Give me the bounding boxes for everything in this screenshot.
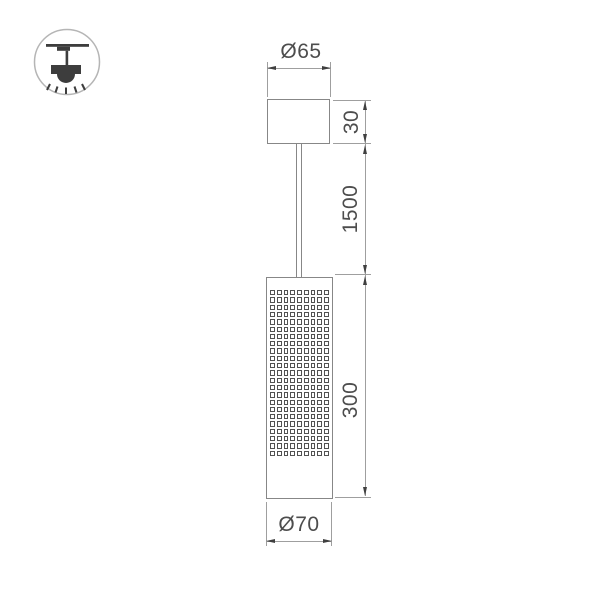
arrowhead-up-icon — [363, 276, 367, 285]
arrowhead-up-icon — [363, 145, 367, 154]
icon-ceiling-line — [46, 44, 89, 47]
canopy — [267, 99, 330, 144]
arrowhead-left-icon — [267, 66, 276, 70]
arrowhead-up-icon — [363, 101, 367, 110]
extension-line — [335, 497, 371, 498]
dim-canopy-diameter-label: Ø65 — [251, 41, 351, 63]
dim-body-diameter-label: Ø70 — [249, 514, 349, 536]
dim-body-height-label: 300 — [340, 382, 362, 419]
dim-canopy-height-label: 30 — [341, 110, 363, 134]
suspension-cable — [296, 144, 302, 277]
arrowhead-down-icon — [363, 265, 367, 274]
arrowhead-right-icon — [323, 539, 332, 543]
technical-drawing-canvas: Ø65 30 1500 300 Ø70 — [0, 0, 600, 600]
arrowhead-right-icon — [322, 66, 331, 70]
arrowhead-left-icon — [266, 539, 275, 543]
pendant-ceiling-mount-icon — [33, 28, 101, 96]
arrowhead-down-icon — [363, 487, 367, 496]
mesh-texture — [270, 290, 329, 456]
arrowhead-down-icon — [363, 134, 367, 143]
dim-cable-length-label: 1500 — [340, 185, 362, 234]
icon-shade — [51, 65, 81, 74]
dimension-line — [365, 101, 366, 496]
icon-canopy — [57, 47, 70, 51]
icon-stem — [66, 51, 69, 66]
